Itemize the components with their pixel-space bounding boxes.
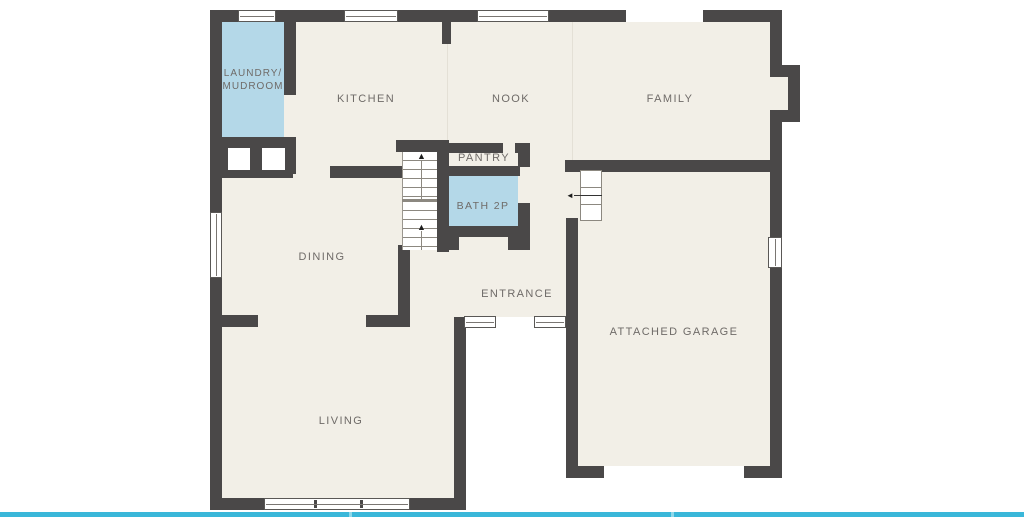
garage-entry-arrow-line (574, 195, 602, 196)
garage-step-line (580, 204, 602, 205)
room-label-laundry-mudroom: LAUNDRY/ MUDROOM (223, 67, 284, 93)
closet-niche (262, 148, 285, 170)
room-label-nook: NOOK (492, 93, 530, 105)
window-mullion (314, 500, 317, 508)
wall (437, 237, 459, 250)
room-label-dining: DINING (299, 251, 346, 263)
window (464, 316, 496, 328)
room-label-laundry-line2: MUDROOM (223, 80, 284, 93)
window-opening (626, 10, 703, 22)
wall (566, 218, 578, 478)
wall (330, 166, 404, 178)
floor-area-garage (572, 320, 776, 466)
garage-door-opening (604, 466, 744, 478)
window (238, 10, 276, 22)
window (534, 316, 566, 328)
wall (744, 466, 770, 478)
front-door-opening (496, 317, 534, 329)
wall (398, 245, 410, 327)
room-label-pantry: PANTRY (458, 152, 510, 164)
wall (442, 22, 451, 44)
room-label-entrance: ENTRANCE (481, 288, 553, 300)
room-divider-line-nook-family (572, 22, 573, 160)
room-label-kitchen: KITCHEN (337, 93, 395, 105)
wall (518, 143, 530, 167)
room-label-living: LIVING (319, 415, 363, 427)
window (477, 10, 549, 22)
window (210, 212, 222, 278)
closet-niche (228, 148, 250, 170)
wall (770, 110, 800, 122)
floor-area-living (216, 320, 456, 504)
wall (770, 172, 782, 478)
carousel-divider-tick (671, 512, 674, 517)
wall (454, 317, 466, 510)
wall (284, 22, 296, 95)
window-mullion (360, 500, 363, 508)
room-label-bath: BATH 2P (457, 200, 510, 212)
staircase-center-line (421, 231, 422, 250)
floorplan-canvas: ▲ ▲ ◄ LAUNDRY/ MUDROOM KITCHEN NOOK FAMI… (0, 0, 1024, 519)
garage-step-line (580, 187, 602, 188)
window (264, 498, 410, 510)
window (344, 10, 398, 22)
wall (449, 166, 520, 176)
wall (222, 315, 258, 327)
staircase-center-line (421, 160, 422, 199)
wall (508, 237, 530, 250)
wall (578, 466, 604, 478)
wall (437, 140, 449, 252)
window (768, 237, 782, 268)
carousel-progress-bar[interactable] (0, 512, 1024, 517)
room-label-attached-garage: ATTACHED GARAGE (610, 326, 739, 338)
room-label-family: FAMILY (647, 93, 694, 105)
stairs-up-arrow-icon: ▲ (417, 152, 426, 161)
carousel-divider-tick (349, 512, 352, 517)
room-floor-bath (449, 172, 518, 226)
garage-step-arrow-icon: ◄ (566, 191, 574, 200)
room-label-laundry-line1: LAUNDRY/ (223, 67, 284, 80)
wall (449, 226, 530, 237)
stairs-up-arrow-icon: ▲ (417, 223, 426, 232)
